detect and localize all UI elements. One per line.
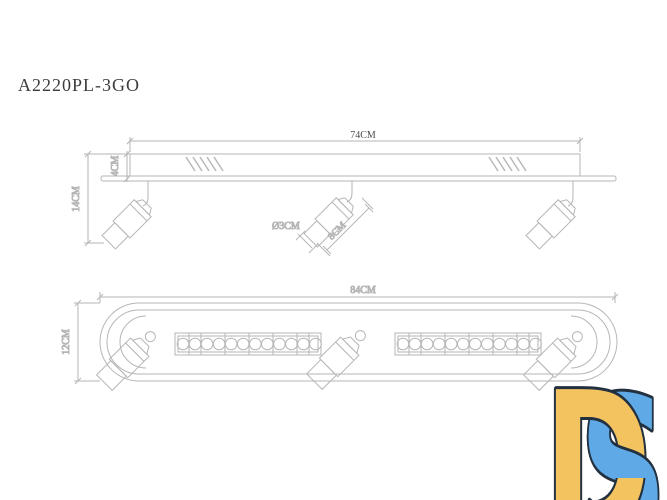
dim-label-84cm: 84CM <box>350 285 376 296</box>
led-circle <box>250 338 262 350</box>
led-circle <box>457 338 469 350</box>
led-strip <box>395 333 541 355</box>
led-circle <box>482 338 494 350</box>
led-circle <box>201 338 213 350</box>
top-view: 74CM 4CM <box>71 130 616 256</box>
ds-logo-watermark: S D S <box>544 351 666 500</box>
bottom-view: 84CM 12CM <box>61 285 618 392</box>
dim-label-74cm: 74CM <box>350 130 376 141</box>
led-circle <box>262 338 274 350</box>
spotlight-bottom-left <box>95 324 163 392</box>
led-circle <box>470 338 482 350</box>
led-circle <box>421 338 433 350</box>
spotlight-top-middle <box>302 194 357 249</box>
dim-12cm <box>74 300 100 384</box>
spotlight-top-left <box>100 196 155 251</box>
led-circle <box>286 338 298 350</box>
dim-label-12cm: 12CM <box>61 329 72 355</box>
led-circle <box>506 338 518 350</box>
led-circle <box>237 338 249 350</box>
bar-end-arc-left <box>120 316 146 368</box>
dim-label-3cm: Ø3CM <box>272 221 300 232</box>
dim-label-14cm: 14CM <box>71 186 82 212</box>
led-circle <box>213 338 225 350</box>
technical-drawing: 74CM 4CM <box>0 0 667 500</box>
led-circle <box>518 338 530 350</box>
led-circle <box>189 338 201 350</box>
led-circle <box>445 338 457 350</box>
spotlight-top-right <box>524 196 579 251</box>
led-circle <box>298 338 310 350</box>
led-circle <box>310 338 322 350</box>
dim-3cm <box>296 231 318 253</box>
dim-14cm <box>84 151 104 246</box>
hatch-marks-right <box>489 157 526 171</box>
led-circle <box>494 338 506 350</box>
led-circle <box>397 338 409 350</box>
led-circle <box>225 338 237 350</box>
led-circle <box>177 338 189 350</box>
led-strip <box>175 333 321 355</box>
led-circle <box>409 338 421 350</box>
led-circle <box>433 338 445 350</box>
hatch-marks-left <box>186 157 223 171</box>
dim-4cm <box>84 151 130 182</box>
dim-label-4cm: 4CM <box>110 156 121 177</box>
led-circle <box>530 338 542 350</box>
led-circle <box>274 338 286 350</box>
drop-rod-middle <box>347 181 352 202</box>
mounting-plate <box>101 176 616 181</box>
